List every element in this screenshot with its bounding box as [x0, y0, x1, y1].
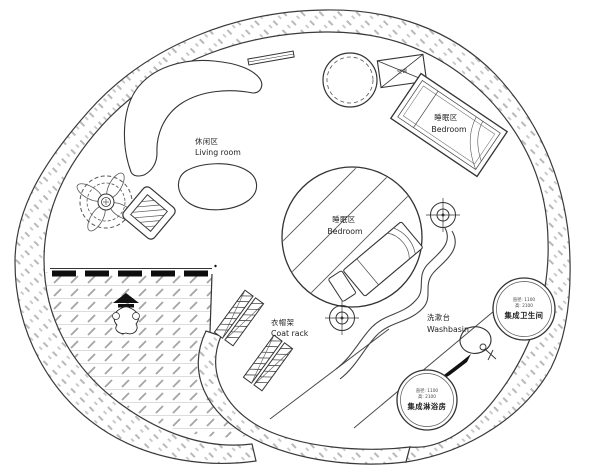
- shower-pod-circle: 直径: 1100 高: 2100 集成淋浴房: [397, 370, 457, 430]
- washbasin-label-en: Washbasin: [427, 325, 469, 334]
- bathroom-pod-name: 集成卫生间: [504, 311, 544, 320]
- coat-rack-label-zh: 衣帽架: [271, 318, 294, 327]
- outer-wall-inner-pass: [198, 331, 410, 464]
- wall-shelf: [248, 51, 294, 65]
- floor-plan-image: 空调: [0, 0, 611, 473]
- flow-arrow: [444, 354, 471, 378]
- armchair: [121, 185, 177, 241]
- floor-plan-svg: 空调: [0, 0, 611, 473]
- shower-pod-dim1: 直径: 1100: [416, 387, 439, 394]
- bathroom-pod-dim2: 高: 2100: [515, 302, 533, 309]
- coat-rack-label-en: Coat rack: [271, 329, 309, 338]
- living-room-label-zh: 休闲区: [195, 137, 218, 146]
- bedroom-upper-label-en: Bedroom: [431, 125, 466, 134]
- washbasin-label-zh: 洗漱台: [427, 313, 450, 322]
- bedroom-center-label-zh: 睡眠区: [332, 215, 355, 224]
- crosshair-upper-icon: [426, 198, 460, 232]
- ac-unit-label: 空调: [397, 67, 408, 75]
- shower-pod-dim2: 高: 2100: [418, 393, 436, 400]
- bedroom-upper-label-zh: 睡眠区: [434, 113, 457, 122]
- coat-rack-a: [214, 290, 263, 346]
- coffee-table: [178, 164, 256, 210]
- plant-icon: [74, 170, 137, 233]
- bathroom-pod-circle: 直径: 1100 高: 2100 集成卫生间: [493, 278, 555, 340]
- wall-end-dot: [214, 265, 216, 267]
- bedroom-center-label-en: Bedroom: [327, 227, 362, 236]
- living-room-label-en: Living room: [195, 148, 241, 157]
- shower-pod-name: 集成淋浴房: [407, 402, 447, 411]
- bathroom-pod-dim1: 直径: 1100: [513, 296, 536, 303]
- round-table: [323, 53, 377, 107]
- coat-rack-b: [243, 335, 292, 391]
